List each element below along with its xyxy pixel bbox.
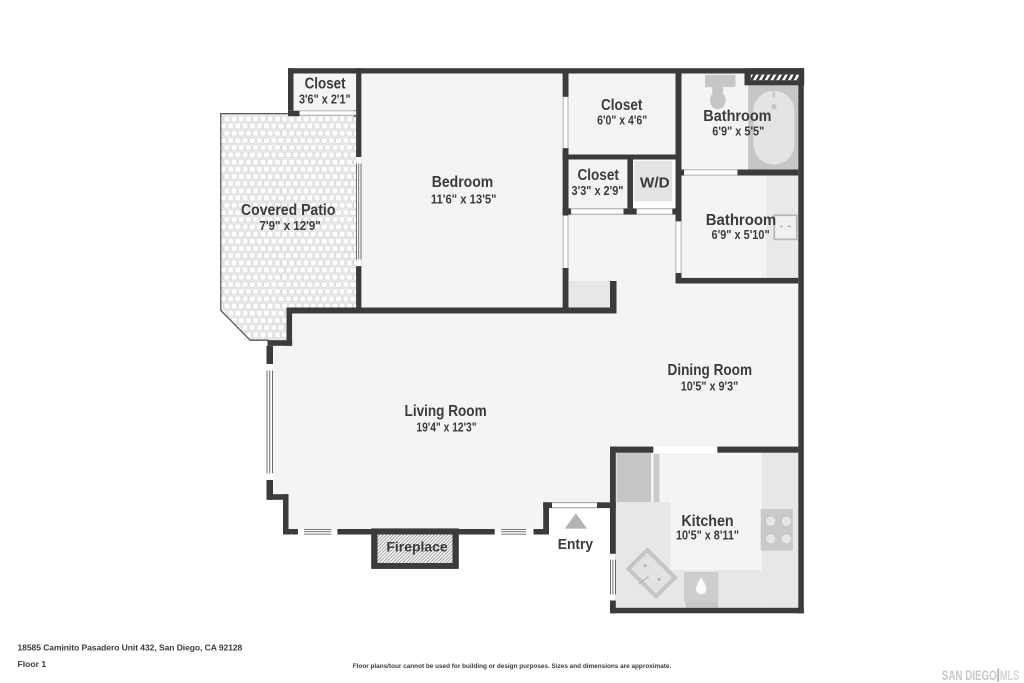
svg-text:W/D: W/D: [640, 175, 670, 191]
svg-text:Floor plans/tour cannot be use: Floor plans/tour cannot be used for buil…: [353, 663, 672, 670]
svg-text:10'5" x 9'3": 10'5" x 9'3": [681, 379, 738, 394]
svg-text:Bathroom: Bathroom: [703, 108, 771, 125]
svg-text:Covered Patio: Covered Patio: [241, 202, 335, 219]
svg-text:6'9" x 5'5": 6'9" x 5'5": [712, 124, 764, 139]
svg-text:6'9" x 5'10": 6'9" x 5'10": [712, 227, 770, 242]
svg-text:Closet: Closet: [305, 76, 346, 93]
svg-text:Bedroom: Bedroom: [432, 174, 494, 191]
svg-text:19'4" x 12'3": 19'4" x 12'3": [416, 420, 476, 435]
svg-text:7'9" x 12'9": 7'9" x 12'9": [260, 218, 321, 233]
svg-text:10'5" x 8'11": 10'5" x 8'11": [676, 528, 739, 543]
svg-text:3'6" x 2'1": 3'6" x 2'1": [299, 92, 351, 107]
svg-text:6'0" x 4'6": 6'0" x 4'6": [597, 112, 647, 127]
svg-text:SAN DIEGO: SAN DIEGO: [942, 668, 997, 683]
svg-text:Closet: Closet: [577, 167, 619, 184]
svg-text:3'3" x 2'9": 3'3" x 2'9": [572, 183, 624, 198]
svg-text:Dining Room: Dining Room: [668, 362, 753, 379]
svg-text:18585 Caminito Pasadero Unit 4: 18585 Caminito Pasadero Unit 432, San Di…: [18, 643, 243, 653]
svg-text:Fireplace: Fireplace: [386, 539, 447, 555]
svg-text:11'6" x 13'5": 11'6" x 13'5": [431, 192, 497, 207]
svg-text:Living Room: Living Room: [405, 403, 487, 420]
svg-text:Floor 1: Floor 1: [18, 659, 47, 669]
svg-text:Entry: Entry: [558, 536, 594, 553]
svg-text:Closet: Closet: [601, 97, 642, 114]
svg-text:MLS: MLS: [1000, 668, 1019, 683]
